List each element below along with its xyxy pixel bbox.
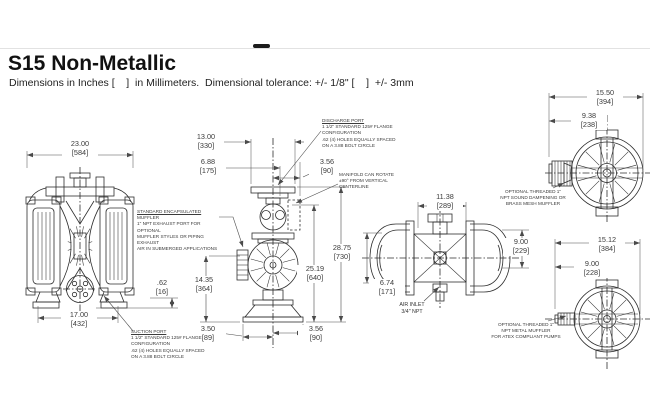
dim-elev-manifold-width: 13.00 [330] xyxy=(188,133,224,151)
note-discharge-port: DISCHARGE PORT 1 1/2" STANDARD 125# FLAN… xyxy=(322,118,400,149)
dim-front-width: 23.00 [584] xyxy=(62,140,98,158)
elevation-view-drawing xyxy=(237,138,303,348)
dim-end-atex-width: 15.12 [384] xyxy=(589,236,625,254)
note-atex-muffler: OPTIONAL THREADED 1" NPT METAL MUFFLER F… xyxy=(488,322,564,341)
dimensional-drawing-page: S15 Non-Metallic Dimensions in Inches [ … xyxy=(0,0,650,417)
note-air-inlet: AIR INLET 3/4" NPT xyxy=(394,302,430,316)
dim-plan-height: 9.00 [229] xyxy=(503,238,539,256)
dim-front-port-offset: .62 [16] xyxy=(144,279,180,297)
drawing-canvas xyxy=(0,0,650,417)
dim-elev-base-right: 3.56 [90] xyxy=(298,325,334,343)
dim-plan-width: 11.38 [289] xyxy=(427,193,463,211)
end-view-atex-drawing xyxy=(545,262,650,370)
note-manifold-rotate: MANIFOLD CAN ROTATE ±90° FROM VERTICAL C… xyxy=(339,172,401,191)
end-view-sound-drawing xyxy=(545,115,650,224)
note-standard-muffler: STANDARD ENCAPSULATED MUFFLER 1" NPT EXH… xyxy=(137,209,221,252)
dim-front-bolt-span: 17.00 [432] xyxy=(61,311,97,329)
note-sound-muffler: OPTIONAL THREADED 1" NPT SOUND DAMPENING… xyxy=(496,189,570,208)
dim-plan-depth: 6.74 [171] xyxy=(369,279,405,297)
note-suction-port: SUCTION PORT 1 1/2" STANDARD 125# FLANGE… xyxy=(131,329,209,360)
dim-end-atex-offset: 9.00 [228] xyxy=(574,260,610,278)
dim-elev-inlet-height: 14.35 [364] xyxy=(186,276,222,294)
dim-end-sound-width: 15.50 [394] xyxy=(587,89,623,107)
dim-elev-total-height: 28.75 [730] xyxy=(324,244,360,262)
end-view-sound-dimension-lines xyxy=(549,93,643,188)
front-view-drawing xyxy=(26,167,134,316)
dim-elev-port-height: 25.19 [640] xyxy=(297,265,333,283)
dim-end-sound-offset: 9.38 [238] xyxy=(571,112,607,130)
dim-elev-flange-width: 6.88 [175] xyxy=(190,158,226,176)
